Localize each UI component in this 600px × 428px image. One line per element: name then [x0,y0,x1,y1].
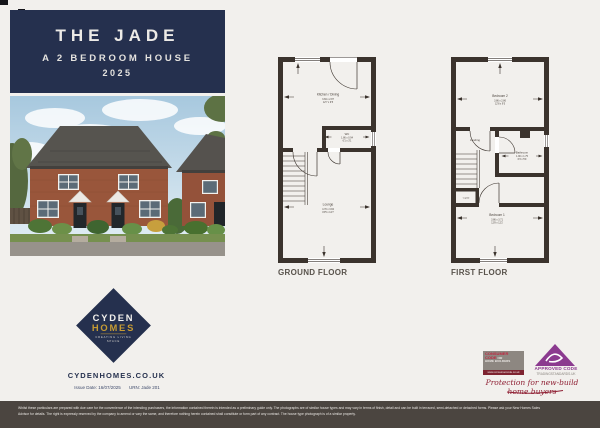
room-label-landing: Landing [470,138,480,142]
path [110,236,126,242]
bedroom1-wall [456,183,544,207]
issue-date: Issue Date: 16/07/2025 [74,385,121,390]
approved-code-sub: TRADINGSTANDARDS.UK [527,372,585,376]
website-url: CYDENHOMES.CO.UK [26,371,207,380]
room-label-bathroom: Bathroom [516,151,529,155]
room-label-kitchen: Kitchen / Dining [317,93,340,97]
house-subtitle: A 2 BEDROOM HOUSE [42,53,193,64]
window-symbol [371,132,376,146]
logo-word-cyden: CYDEN [93,313,135,323]
room-dim-bathroom-imperial: 6'3 x 5'9 [518,158,527,161]
disclaimer-text: Whilst these particulars are prepared wi… [18,405,540,417]
driveway [10,242,225,256]
room-dim-kitchen-imperial: 12'7 x 9'5 [323,101,334,104]
house-pair [26,126,172,228]
first-floor-label: FIRST FLOOR [451,268,508,277]
outer-walls [278,57,376,263]
ground-floor-label: GROUND FLOOR [278,268,347,277]
strapline-swoosh [505,389,565,394]
house-year: 2025 [102,68,132,78]
room-dim-bedroom2-imperial: 12'8 x 9'5 [495,103,506,106]
room-label-lounge: Lounge [323,203,334,207]
room-dim-lounge-imperial: 15'5 x 12'7 [322,211,334,214]
entrance-door [330,57,357,89]
room-label-bedroom2: Bedroom 2 [492,94,508,98]
issue-urn: URN: Jade 201 [129,385,160,390]
house-photo [10,96,225,256]
logo-tagline-2: SPACE [107,339,120,343]
print-mark [0,0,8,5]
approved-code-label: APPROVED CODE [527,366,585,371]
window-symbol [544,135,549,147]
logo-tagline-1: CREATING LIVING [95,335,131,339]
title-panel: THE JADE A 2 BEDROOM HOUSE 2025 [10,10,225,93]
ground-floor-plan: Kitchen / Dining 3.84 x 2.87 12'7 x 9'5 … [278,57,376,263]
house-name-title: THE JADE [55,26,179,46]
disclaimer-bar: Whilst these particulars are prepared wi… [0,401,600,428]
path [72,236,88,242]
consumer-code-word3: HOME BUILDERS [485,360,524,363]
cyden-homes-logo: CYDEN HOMES CREATING LIVING SPACE [76,288,151,363]
approved-code-triangle-icon [533,343,577,367]
dimension-arrows [457,63,543,257]
room-label-wc: WC [345,132,350,136]
first-floor-plan: Bedroom 2 3.86 x 2.86 12'8 x 9'5 Landing… [451,57,549,263]
staircase [283,152,307,205]
window-symbol [308,258,340,263]
consumer-code-text: CONSUMER CODEFOR HOME BUILDERS [483,351,524,363]
wc-room-walls [283,126,371,164]
issue-line: Issue Date: 16/07/2025 URN: Jade 201 [16,385,218,390]
consumer-code-url: www.consumercode.co.uk [483,370,524,375]
room-dim-bedroom1-imperial: 12'8 x 12'2 [491,222,503,225]
consumer-code-strip: www.consumercode.co.uk [483,370,524,375]
brochure-page: THE JADE A 2 BEDROOM HOUSE 2025 [0,0,600,428]
window-symbol [480,258,507,263]
logo-word-homes: HOMES [92,323,135,333]
consumer-code-badge: CONSUMER CODEFOR HOME BUILDERS www.consu… [483,351,524,375]
staircase [456,150,479,188]
room-label-bedroom1: Bedroom 1 [489,213,505,217]
room-label-cupboard: Cupbd [463,198,470,200]
room-dim-wc-imperial: 6'1 x 3'1 [343,139,352,142]
window-symbol [488,57,512,62]
outer-walls [451,57,549,263]
window-symbol [295,57,320,62]
